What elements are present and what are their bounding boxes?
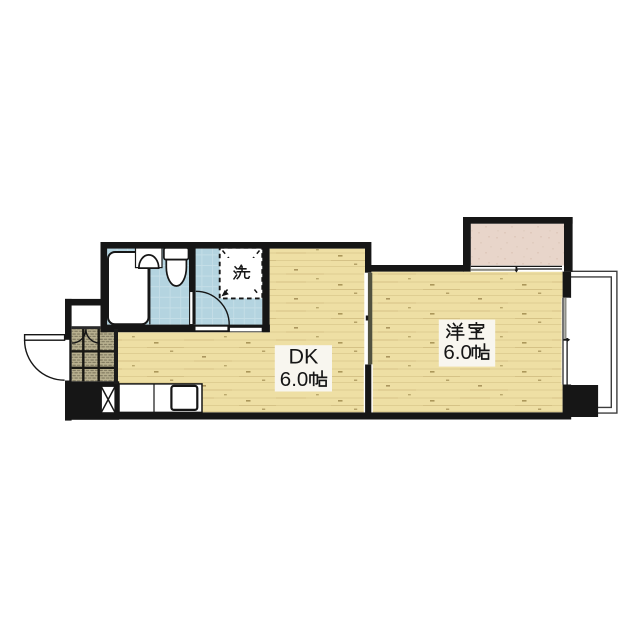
svg-text:DK: DK (288, 345, 319, 369)
svg-text:6.0: 6.0 (443, 341, 472, 364)
svg-text:6.0: 6.0 (280, 368, 309, 391)
